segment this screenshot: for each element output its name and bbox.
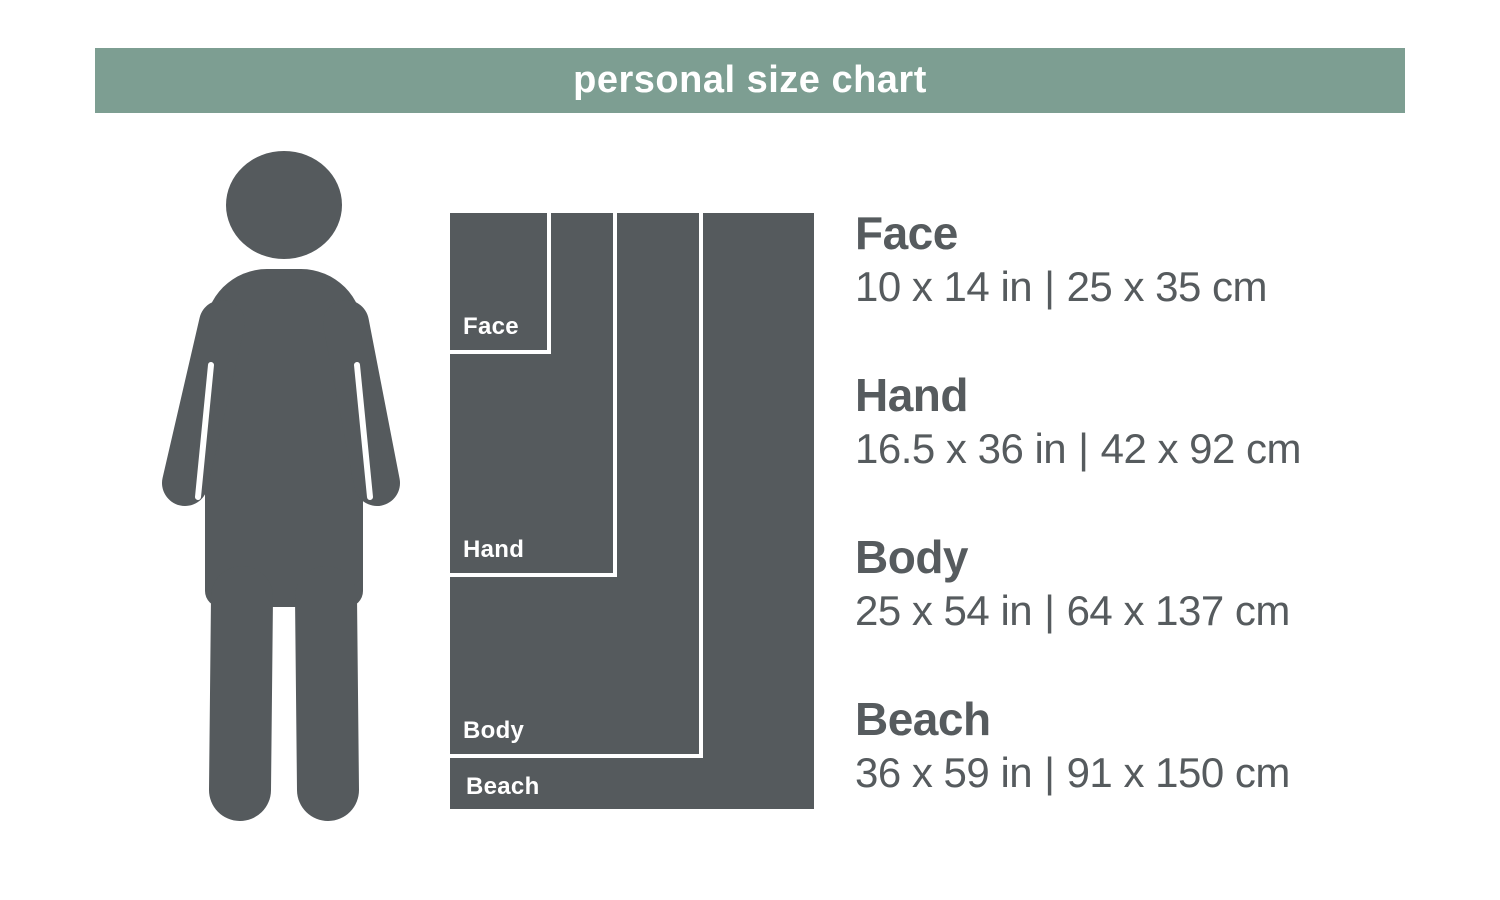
dimensions-separator: | <box>1044 587 1054 634</box>
towel-rect-label-body: Body <box>463 717 524 745</box>
dimensions-cm: 42 x 92 cm <box>1101 425 1301 472</box>
dimensions-cm: 91 x 150 cm <box>1067 749 1290 796</box>
towel-rect-label-hand: Hand <box>463 536 524 564</box>
legend-dimensions-hand: 16.5 x 36 in|42 x 92 cm <box>855 422 1415 477</box>
towel-rect-label-face: Face <box>463 313 519 341</box>
towel-rect-label-beach: Beach <box>466 773 540 801</box>
dimensions-inches: 25 x 54 in <box>855 587 1032 634</box>
dimensions-separator: | <box>1044 263 1054 310</box>
legend-title-face: Face <box>855 208 1415 260</box>
person-silhouette-icon <box>160 145 402 825</box>
legend-dimensions-beach: 36 x 59 in|91 x 150 cm <box>855 746 1415 801</box>
legend-title-beach: Beach <box>855 694 1415 746</box>
dimensions-separator: | <box>1078 425 1088 472</box>
dimensions-cm: 64 x 137 cm <box>1067 587 1290 634</box>
dimensions-cm: 25 x 35 cm <box>1067 263 1267 310</box>
header-banner: personal size chart <box>95 48 1405 113</box>
page-title: personal size chart <box>573 59 927 102</box>
dimensions-inches: 36 x 59 in <box>855 749 1032 796</box>
dimensions-separator: | <box>1044 749 1054 796</box>
legend-title-hand: Hand <box>855 370 1415 422</box>
legend-title-body: Body <box>855 532 1415 584</box>
legend-item-face: Face 10 x 14 in|25 x 35 cm <box>855 208 1415 314</box>
legend-item-hand: Hand 16.5 x 36 in|42 x 92 cm <box>855 370 1415 476</box>
legend-item-body: Body 25 x 54 in|64 x 137 cm <box>855 532 1415 638</box>
towel-size-diagram: Beach Body Hand Face <box>450 213 814 809</box>
towel-rect-face: Face <box>450 213 551 354</box>
legend-dimensions-body: 25 x 54 in|64 x 137 cm <box>855 584 1415 639</box>
legend-item-beach: Beach 36 x 59 in|91 x 150 cm <box>855 694 1415 800</box>
size-legend: Face 10 x 14 in|25 x 35 cm Hand 16.5 x 3… <box>855 208 1415 856</box>
dimensions-inches: 10 x 14 in <box>855 263 1032 310</box>
dimensions-inches: 16.5 x 36 in <box>855 425 1066 472</box>
legend-dimensions-face: 10 x 14 in|25 x 35 cm <box>855 260 1415 315</box>
